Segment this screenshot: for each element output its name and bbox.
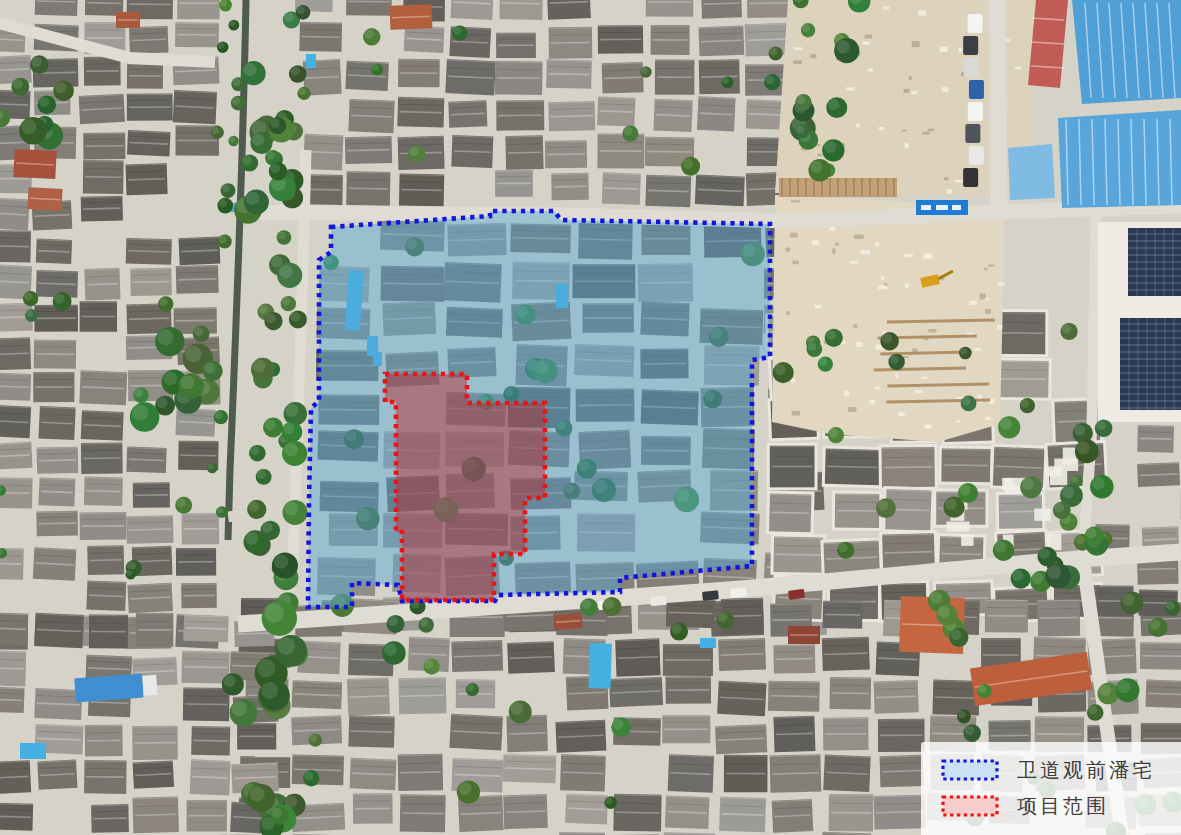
legend-label-heritage: 卫道观前潘宅 <box>1017 759 1155 781</box>
project-swatch-icon <box>941 795 999 817</box>
heritage-swatch-icon <box>941 759 999 781</box>
map-legend: 卫道观前潘宅 项目范围 <box>921 742 1181 835</box>
legend-label-project: 项目范围 <box>1017 795 1109 817</box>
aerial-map: 卫道观前潘宅 项目范围 <box>0 0 1181 835</box>
boundary-overlays <box>0 0 1181 835</box>
legend-item-project: 项目范围 <box>941 795 1181 817</box>
legend-item-heritage: 卫道观前潘宅 <box>941 759 1181 781</box>
